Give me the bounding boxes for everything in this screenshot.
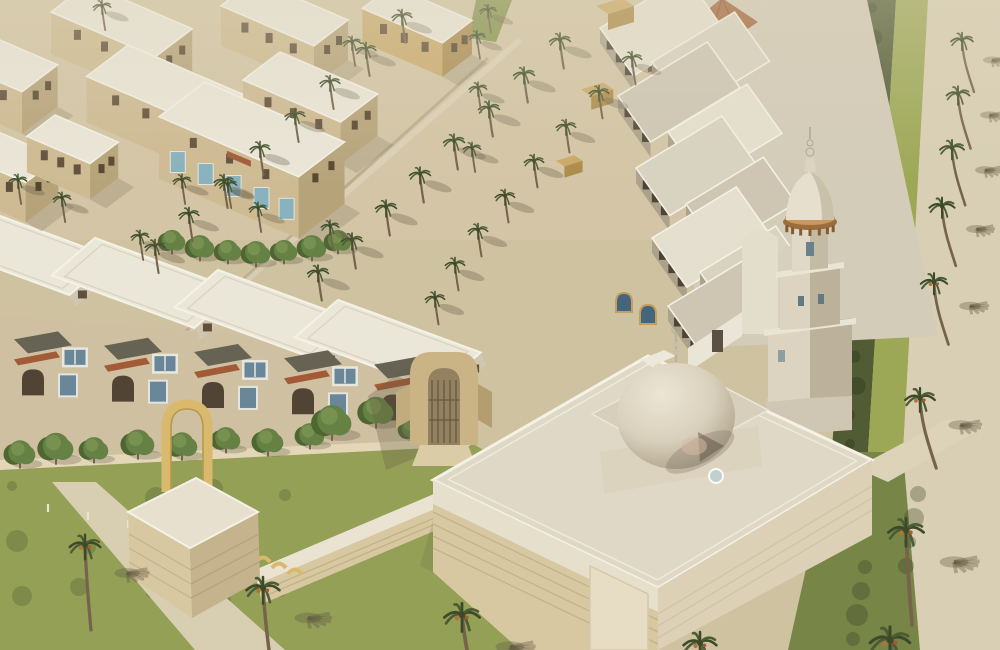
aerial-render-image — [0, 0, 1000, 650]
render-canvas — [0, 0, 1000, 650]
warm-tint — [0, 0, 1000, 650]
haze-overlay — [0, 0, 1000, 650]
